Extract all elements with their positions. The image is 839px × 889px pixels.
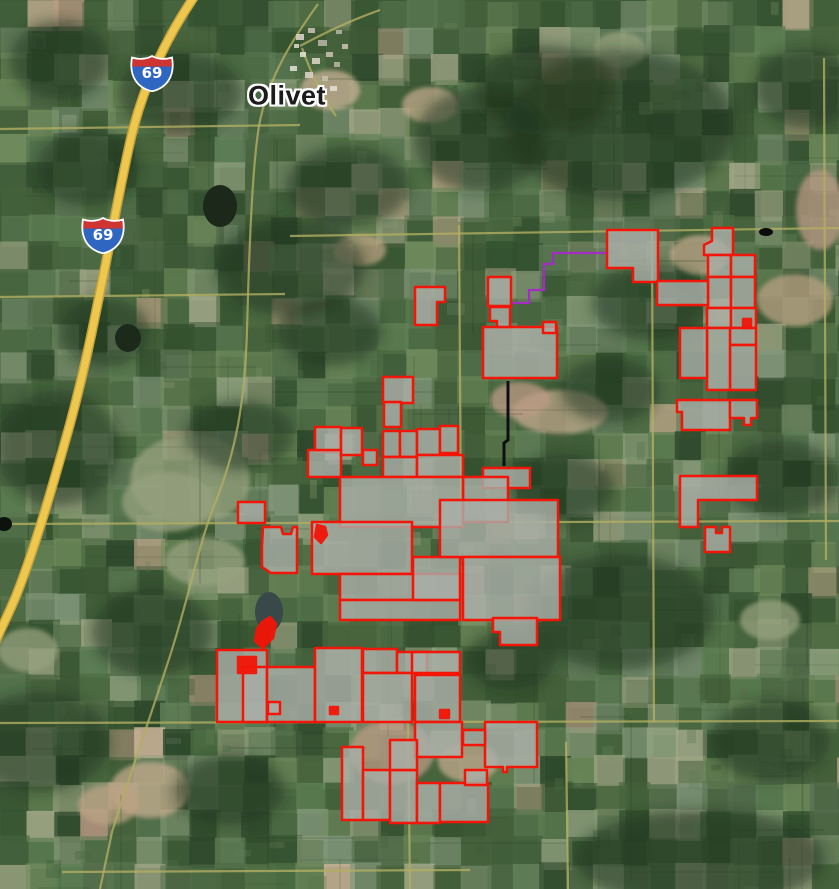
parcel-polygon[interactable] — [315, 427, 341, 452]
town-label: Olivet — [248, 81, 326, 112]
satellite-map-view[interactable]: 69 69 Olivet — [0, 0, 839, 889]
parcel-polygon[interactable] — [384, 402, 401, 427]
parcel-polygon[interactable] — [243, 667, 267, 722]
parcel-polygon[interactable] — [415, 722, 462, 757]
parcel-polygon[interactable] — [707, 308, 731, 328]
parcel-polygon[interactable] — [400, 431, 417, 457]
map-canvas — [0, 0, 839, 889]
parcel-polygon[interactable] — [340, 600, 460, 620]
parcel-polygon[interactable] — [417, 455, 463, 477]
parcel-polygon[interactable] — [383, 431, 400, 457]
parcel-polygon[interactable] — [363, 673, 412, 722]
parcel-polygon[interactable] — [262, 527, 297, 573]
parcel-polygon[interactable] — [465, 770, 487, 785]
parcel-polygon[interactable] — [708, 255, 731, 277]
parcel-polygon[interactable] — [363, 450, 377, 465]
parcel-polygon[interactable] — [483, 327, 557, 378]
parcel-polygon[interactable] — [440, 500, 558, 557]
parcel-polygon[interactable] — [342, 747, 363, 820]
parcel-polygon[interactable] — [390, 770, 417, 823]
parcel-polygon[interactable] — [485, 722, 537, 772]
parcel-polygon-small[interactable] — [743, 319, 751, 328]
parcel-polygon[interactable] — [488, 277, 511, 306]
parcel-polygon[interactable] — [363, 649, 397, 673]
parcel-polygon[interactable] — [493, 618, 537, 645]
parcel-polygon[interactable] — [440, 783, 488, 822]
parcel-polygon[interactable] — [238, 502, 265, 523]
parcel-polygon[interactable] — [730, 328, 756, 345]
parcel-polygon[interactable] — [312, 522, 412, 574]
parcel-polygon[interactable] — [707, 328, 730, 390]
parcel-polygon[interactable] — [440, 426, 458, 453]
parcel-polygon[interactable] — [677, 400, 730, 430]
parcel-polygon[interactable] — [680, 328, 707, 378]
parcel-polygon[interactable] — [383, 377, 413, 403]
parcel-polygon[interactable] — [731, 255, 755, 277]
parcel-polygon[interactable] — [417, 429, 440, 455]
parcel-polygon[interactable] — [543, 322, 556, 333]
parcel-polygon[interactable] — [268, 702, 280, 714]
parcel-polygon[interactable] — [708, 277, 731, 308]
parcel-polygon[interactable] — [363, 770, 390, 820]
parcel-polygon[interactable] — [415, 675, 460, 722]
parcel-polygon[interactable] — [463, 557, 560, 620]
parcel-polygon[interactable] — [413, 557, 460, 600]
parcel-polygon-small[interactable] — [238, 657, 256, 673]
parcel-polygon[interactable] — [340, 428, 362, 455]
parcel-polygon[interactable] — [390, 740, 417, 770]
parcel-polygon[interactable] — [308, 450, 341, 477]
parcel-polygon[interactable] — [463, 730, 485, 745]
parcel-polygon-small[interactable] — [440, 710, 449, 718]
parcel-polygon[interactable] — [417, 783, 440, 823]
parcel-polygon[interactable] — [412, 652, 460, 673]
parcel-polygon[interactable] — [730, 345, 756, 390]
parcel-polygon[interactable] — [383, 457, 417, 477]
parcel-polygon-small[interactable] — [330, 707, 338, 714]
parcel-polygon[interactable] — [657, 281, 708, 305]
parcel-polygon[interactable] — [731, 277, 755, 308]
